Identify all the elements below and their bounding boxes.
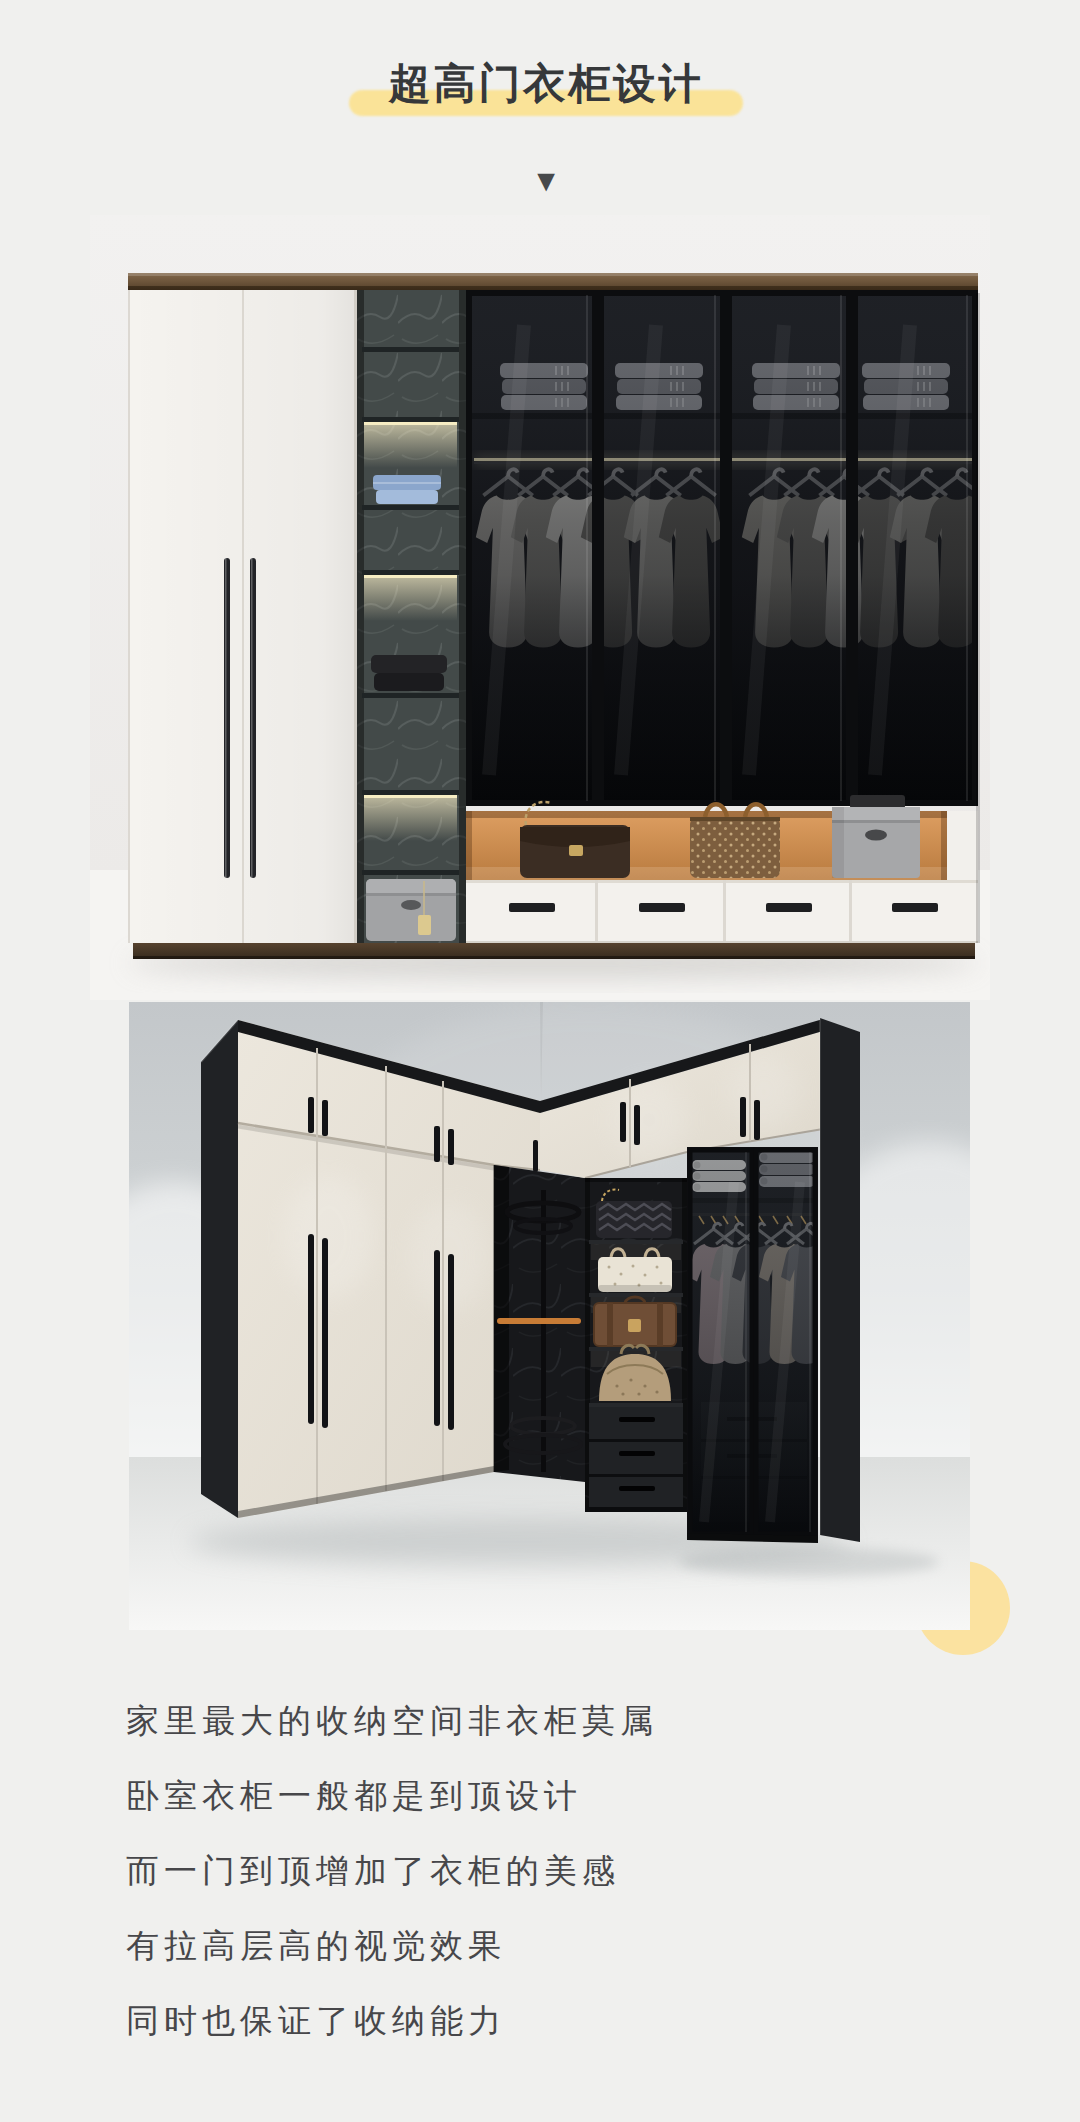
blue-towels-stack xyxy=(373,475,441,504)
fabric-storage-box xyxy=(366,879,456,941)
wardrobe-photo-flat xyxy=(90,215,990,1000)
left-wing xyxy=(201,1020,540,1518)
paragraph-5: 同时也保证了收纳能力 xyxy=(126,2000,1046,2041)
corner-rack-unit xyxy=(494,1165,585,1482)
wardrobe-photo-corner xyxy=(129,1002,970,1630)
photo1-illustration xyxy=(90,215,990,1000)
paragraph-2: 卧室衣柜一般都是到顶设计 xyxy=(126,1775,1046,1816)
dark-drawers xyxy=(589,1407,683,1509)
dark-folded-clothes xyxy=(371,655,447,691)
brown-trunk-bag xyxy=(594,1297,676,1346)
down-arrow-icon: ▼ xyxy=(6,163,1080,199)
paragraph-1: 家里最大的收纳空间非衣柜莫属 xyxy=(126,1700,1046,1741)
glass-door-section xyxy=(687,1147,832,1543)
paragraph-3: 而一门到顶增加了衣柜的美感 xyxy=(126,1850,1046,1891)
page-title: 超高门衣柜设计 xyxy=(6,60,1080,108)
right-wing xyxy=(540,1018,860,1543)
paragraph-4: 有拉高层高的视觉效果 xyxy=(126,1925,1046,1966)
photo2-illustration xyxy=(129,1002,970,1630)
article-header: 超高门衣柜设计 xyxy=(6,0,1080,140)
handbag-shelf-column xyxy=(585,1178,687,1512)
article-text: 家里最大的收纳空间非衣柜莫属 卧室衣柜一般都是到顶设计 而一门到顶增加了衣柜的美… xyxy=(126,1700,1046,2075)
smoked-glass-doors xyxy=(469,293,975,803)
article-page: 超高门衣柜设计 ▼ xyxy=(0,0,1080,2122)
gray-storage-box xyxy=(832,795,920,878)
